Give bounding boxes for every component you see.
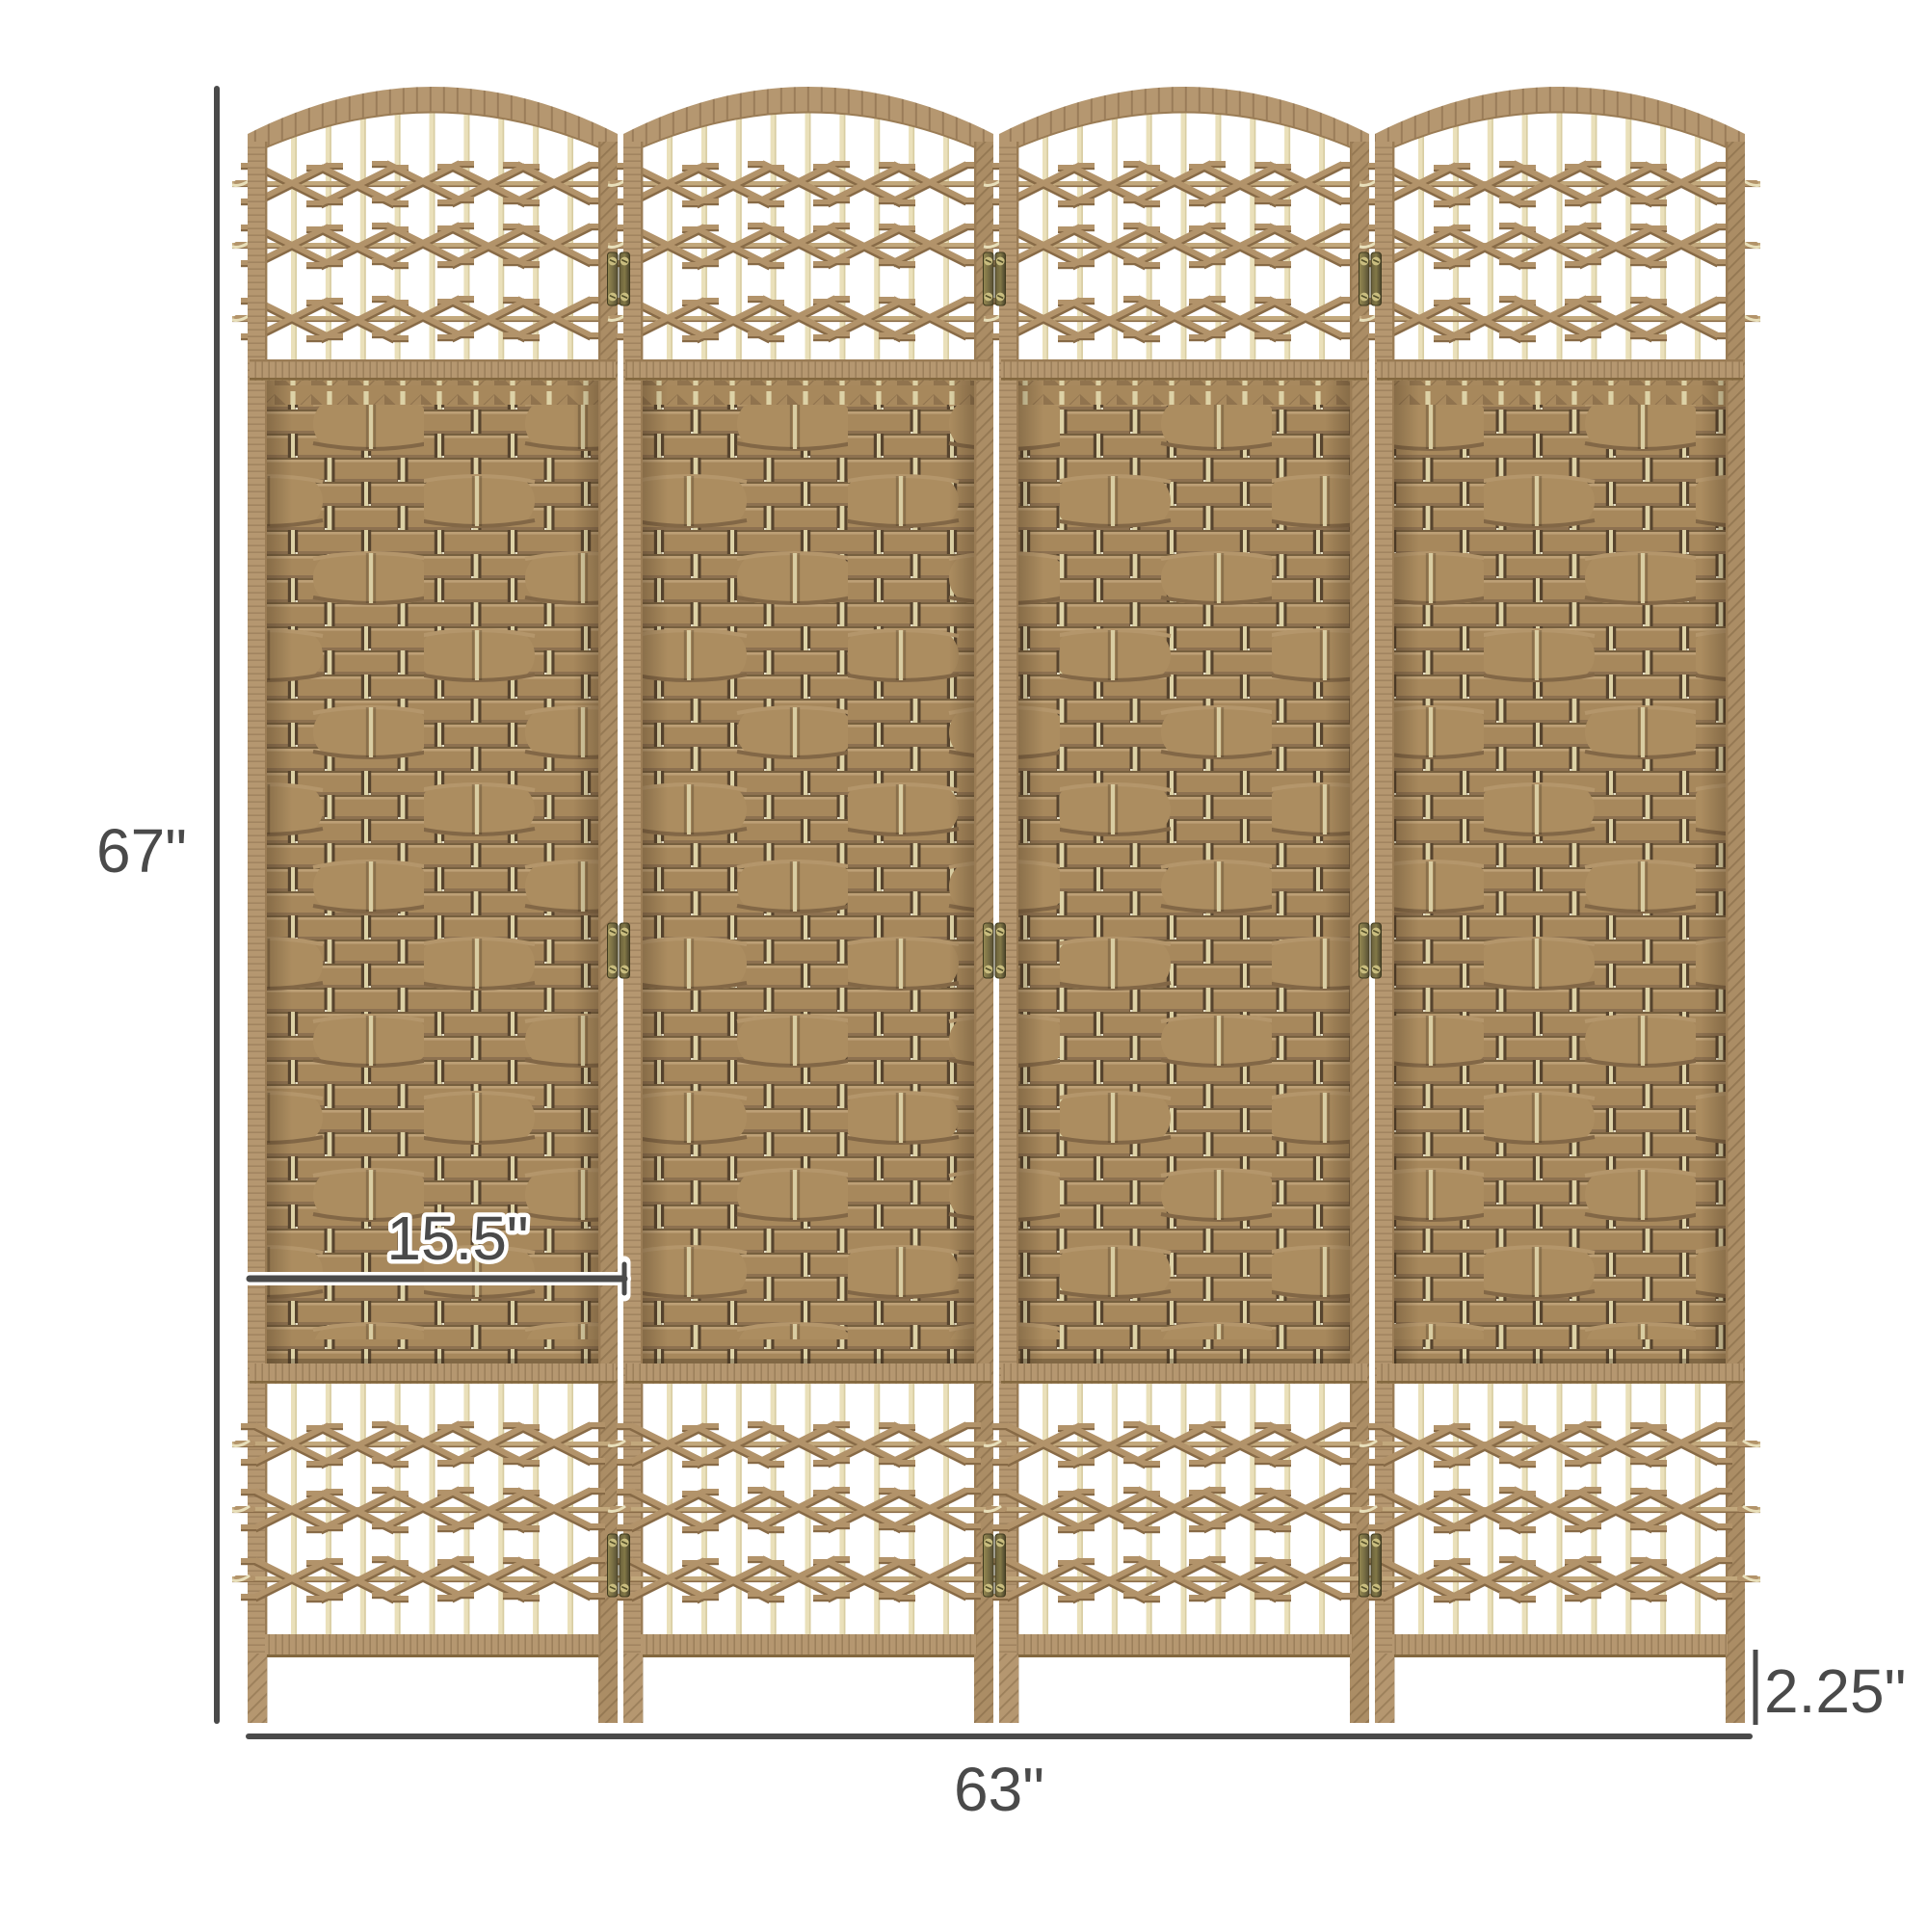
svg-text:63": 63" (954, 1755, 1044, 1824)
svg-text:67": 67" (96, 816, 187, 886)
svg-text:2.25": 2.25" (1764, 1656, 1906, 1726)
svg-text:15.5": 15.5" (386, 1204, 528, 1273)
